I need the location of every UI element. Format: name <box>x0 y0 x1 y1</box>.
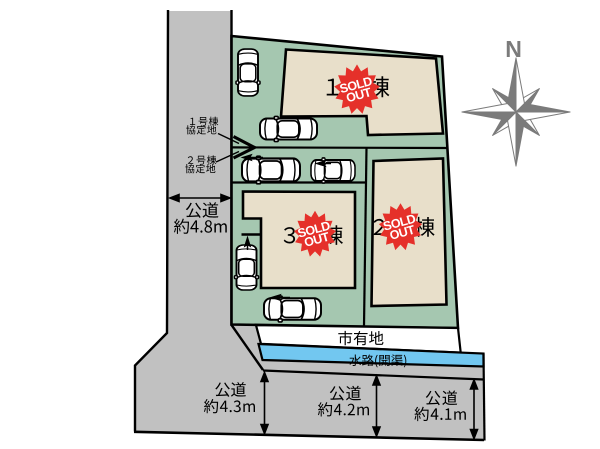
svg-text:N: N <box>505 36 522 62</box>
